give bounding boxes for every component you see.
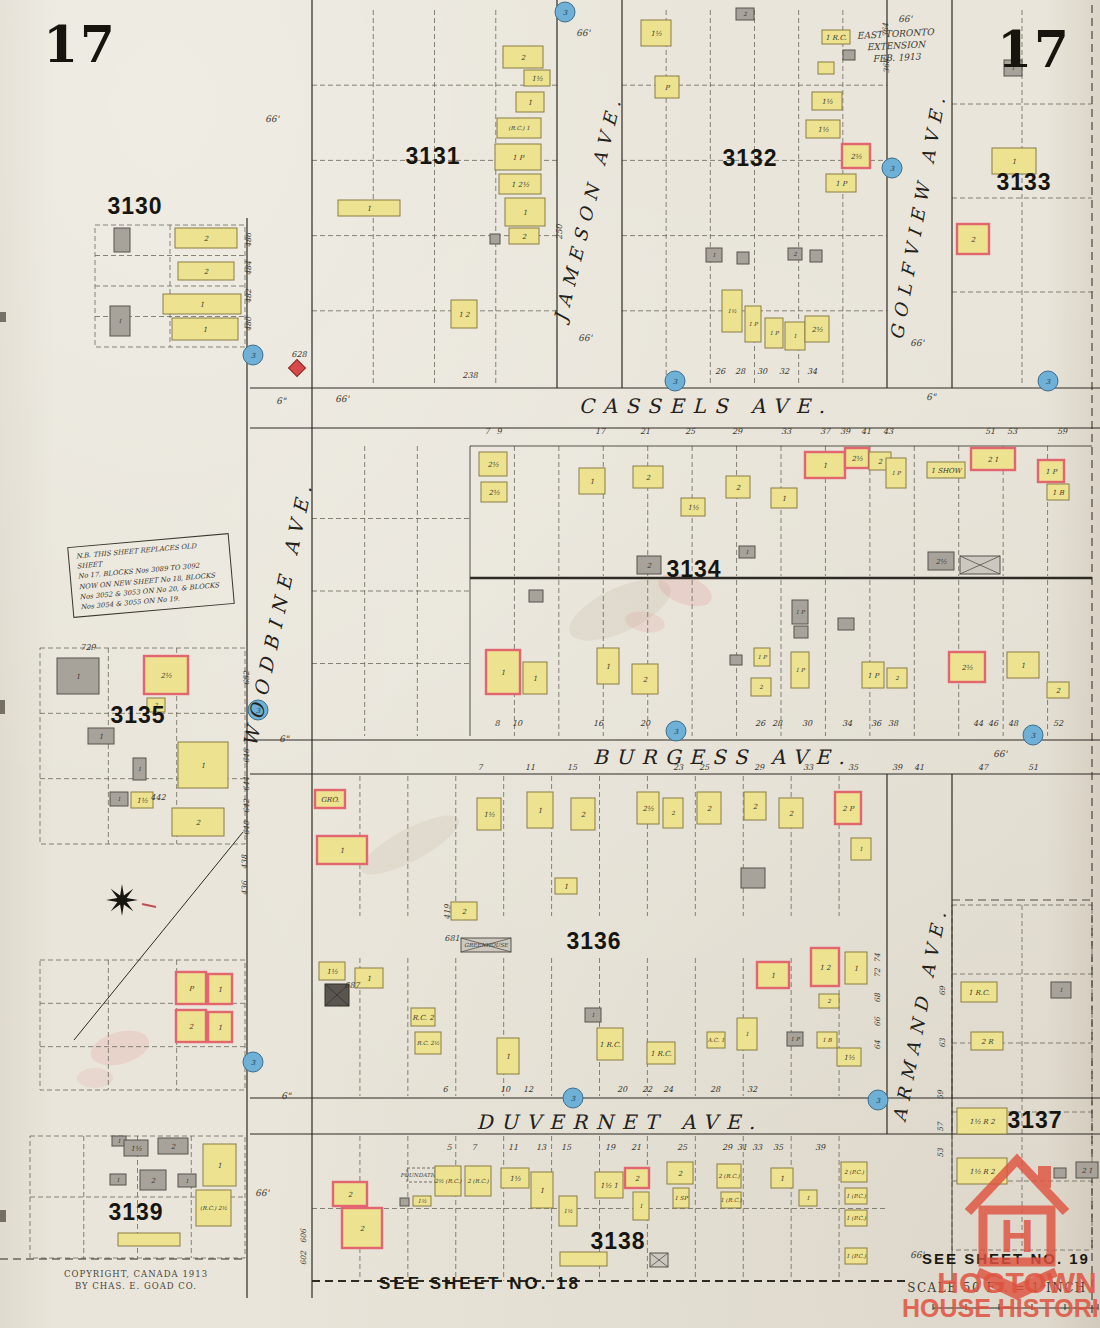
svg-text:1 P: 1 P — [867, 672, 880, 680]
svg-text:1: 1 — [117, 1138, 121, 1144]
svg-text:2½: 2½ — [935, 558, 946, 566]
svg-text:11: 11 — [508, 1143, 518, 1152]
street-label-burgess: BURGESS AVE. — [593, 745, 853, 769]
replacement-note-box: N.B. THIS SHEET REPLACES OLD SHEET No 17… — [67, 533, 235, 618]
svg-text:3: 3 — [571, 1095, 576, 1103]
svg-text:2: 2 — [753, 803, 758, 811]
svg-text:1: 1 — [138, 766, 142, 772]
svg-text:1: 1 — [854, 965, 858, 973]
svg-text:1 P: 1 P — [795, 667, 805, 673]
svg-text:2½ (R.C.): 2½ (R.C.) — [435, 1178, 463, 1184]
svg-text:1 SHOW: 1 SHOW — [931, 467, 963, 475]
svg-text:1 (P.C.): 1 (P.C.) — [846, 1253, 867, 1259]
svg-text:37: 37 — [820, 427, 831, 436]
svg-text:GRO.: GRO. — [321, 796, 339, 804]
svg-text:1: 1 — [76, 673, 80, 681]
copyright-line1: COPYRIGHT, CANADA 1913 — [64, 1269, 208, 1281]
svg-text:10: 10 — [512, 719, 523, 728]
street-label-cassels: CASSELS AVE. — [579, 394, 833, 418]
svg-text:2: 2 — [736, 484, 741, 492]
svg-text:R.C. 2½: R.C. 2½ — [417, 1040, 440, 1046]
svg-text:1: 1 — [793, 333, 797, 339]
svg-text:1½: 1½ — [687, 504, 698, 512]
svg-text:1: 1 — [780, 1175, 784, 1183]
svg-text:48: 48 — [1008, 719, 1019, 728]
svg-text:1: 1 — [501, 669, 505, 677]
svg-text:2 (R.C.): 2 (R.C.) — [467, 1178, 489, 1184]
svg-text:1½: 1½ — [483, 811, 494, 819]
block-label-3135: 3135 — [110, 702, 165, 729]
svg-text:1½: 1½ — [817, 126, 828, 134]
svg-text:2: 2 — [895, 675, 899, 681]
svg-text:59: 59 — [936, 1089, 945, 1100]
svg-text:12: 12 — [523, 1085, 534, 1094]
svg-text:51: 51 — [985, 427, 995, 436]
svg-text:2: 2 — [189, 1023, 194, 1031]
svg-text:2: 2 — [348, 1191, 353, 1199]
svg-text:2: 2 — [647, 562, 652, 570]
svg-text:24: 24 — [663, 1085, 674, 1094]
svg-text:21: 21 — [640, 427, 650, 436]
svg-text:17: 17 — [595, 427, 606, 436]
svg-text:2: 2 — [793, 251, 797, 257]
svg-text:39: 39 — [840, 427, 851, 436]
svg-text:1½: 1½ — [509, 1175, 520, 1183]
svg-text:1 P: 1 P — [891, 470, 901, 476]
svg-text:238: 238 — [462, 371, 478, 380]
svg-text:2½: 2½ — [961, 664, 972, 672]
svg-text:2: 2 — [678, 1170, 683, 1178]
sheet-number-right: 17 — [997, 20, 1071, 79]
svg-text:1½: 1½ — [418, 1198, 428, 1204]
svg-text:2: 2 — [789, 810, 794, 818]
svg-text:1: 1 — [367, 205, 371, 213]
svg-text:681: 681 — [444, 934, 459, 943]
svg-text:1½: 1½ — [564, 1208, 574, 1214]
svg-text:25: 25 — [677, 1143, 688, 1152]
svg-text:39: 39 — [815, 1143, 826, 1152]
svg-text:33: 33 — [752, 1143, 763, 1152]
svg-text:1 SP: 1 SP — [675, 1195, 689, 1201]
svg-text:66': 66' — [255, 1188, 270, 1198]
svg-text:72: 72 — [873, 967, 882, 978]
svg-text:33: 33 — [781, 427, 792, 436]
svg-text:3: 3 — [563, 9, 568, 17]
svg-text:38: 38 — [888, 719, 899, 728]
svg-text:1: 1 — [218, 986, 222, 994]
svg-text:25: 25 — [685, 427, 696, 436]
svg-text:11: 11 — [525, 763, 535, 772]
svg-text:1 P: 1 P — [769, 330, 779, 336]
svg-text:1: 1 — [745, 1031, 749, 1037]
svg-text:1: 1 — [200, 301, 204, 309]
svg-text:1: 1 — [118, 318, 122, 324]
svg-text:606: 606 — [299, 1228, 308, 1244]
svg-text:1½: 1½ — [728, 308, 738, 314]
svg-text:2: 2 — [360, 1225, 365, 1233]
svg-text:1: 1 — [564, 883, 568, 891]
svg-text:2: 2 — [581, 811, 586, 819]
svg-text:687: 687 — [344, 981, 360, 990]
block-label-3139: 3139 — [108, 1199, 163, 1226]
svg-text:480: 480 — [244, 316, 253, 332]
svg-text:1 P: 1 P — [512, 154, 525, 162]
svg-text:22: 22 — [642, 1085, 653, 1094]
svg-text:6": 6" — [276, 396, 287, 406]
svg-text:729: 729 — [80, 643, 96, 652]
svg-text:51: 51 — [1028, 763, 1038, 772]
svg-text:1: 1 — [591, 1012, 595, 1018]
svg-text:2: 2 — [643, 676, 648, 684]
svg-text:1 (R.C.): 1 (R.C.) — [720, 1197, 742, 1203]
svg-text:1: 1 — [823, 462, 827, 470]
svg-text:8: 8 — [494, 719, 500, 728]
svg-text:1: 1 — [99, 733, 103, 741]
svg-text:1 (P.C.): 1 (P.C.) — [846, 1215, 867, 1221]
svg-text:1 R.C.: 1 R.C. — [599, 1041, 621, 1049]
svg-text:1 (P.C.): 1 (P.C.) — [846, 1193, 867, 1199]
svg-text:642: 642 — [242, 798, 251, 814]
svg-text:1½: 1½ — [531, 75, 542, 83]
svg-text:1: 1 — [771, 972, 775, 980]
svg-text:1: 1 — [528, 99, 532, 107]
svg-text:1: 1 — [340, 847, 344, 855]
svg-text:15: 15 — [567, 763, 578, 772]
compass-rose — [74, 832, 243, 1040]
svg-text:3: 3 — [251, 1059, 256, 1067]
svg-text:(R.C.) 2½: (R.C.) 2½ — [200, 1205, 228, 1211]
svg-text:1½: 1½ — [821, 98, 832, 106]
svg-text:47: 47 — [978, 763, 989, 772]
block-label-3132: 3132 — [722, 145, 777, 172]
lot-grid-layer — [30, 10, 1092, 1281]
svg-text:15: 15 — [561, 1143, 572, 1152]
svg-text:7: 7 — [471, 1143, 477, 1152]
svg-text:1 R.C.: 1 R.C. — [650, 1050, 672, 1058]
svg-text:1: 1 — [782, 495, 786, 503]
svg-text:3: 3 — [1046, 378, 1051, 386]
svg-text:1: 1 — [538, 807, 542, 815]
svg-text:419: 419 — [443, 903, 452, 919]
svg-text:26: 26 — [755, 719, 766, 728]
svg-text:2 (R.C.): 2 (R.C.) — [718, 1173, 740, 1179]
svg-text:3: 3 — [251, 352, 256, 360]
svg-text:43: 43 — [883, 427, 894, 436]
see-sheet-19-note: SEE SHEET NO. 19 — [922, 1250, 1090, 1267]
svg-text:10: 10 — [500, 1085, 511, 1094]
svg-text:1½: 1½ — [843, 1054, 854, 1062]
svg-text:66': 66' — [265, 114, 280, 124]
svg-text:66': 66' — [993, 749, 1008, 759]
svg-text:7: 7 — [477, 763, 483, 772]
svg-text:1½: 1½ — [650, 30, 661, 38]
svg-text:53: 53 — [1007, 427, 1018, 436]
svg-text:2 R: 2 R — [981, 1038, 994, 1046]
svg-text:602: 602 — [299, 1250, 308, 1266]
svg-text:1: 1 — [806, 1195, 810, 1201]
svg-text:2½: 2½ — [488, 489, 499, 497]
svg-text:1: 1 — [606, 663, 610, 671]
svg-text:66: 66 — [873, 1016, 882, 1027]
svg-text:20: 20 — [617, 1085, 628, 1094]
svg-text:2: 2 — [971, 236, 976, 244]
svg-text:16: 16 — [593, 719, 604, 728]
svg-text:1 B: 1 B — [1052, 489, 1065, 497]
svg-text:6": 6" — [281, 1091, 292, 1101]
svg-text:1 P: 1 P — [790, 1036, 800, 1042]
svg-text:6: 6 — [442, 1085, 448, 1094]
svg-text:1: 1 — [712, 252, 716, 258]
svg-text:2 (P.C.): 2 (P.C.) — [844, 1169, 865, 1175]
svg-text:44: 44 — [973, 719, 984, 728]
svg-text:1: 1 — [185, 1178, 189, 1184]
svg-text:1: 1 — [533, 675, 537, 683]
svg-text:2½: 2½ — [160, 672, 171, 680]
svg-text:1½: 1½ — [130, 1145, 141, 1153]
svg-text:3: 3 — [890, 165, 895, 173]
svg-text:46: 46 — [988, 719, 999, 728]
svg-text:652: 652 — [242, 670, 251, 686]
svg-text:1: 1 — [217, 1162, 221, 1170]
see-sheet-18-note: SEE SHEET NO. 18 — [379, 1274, 581, 1294]
svg-text:64: 64 — [873, 1040, 882, 1050]
svg-text:2½: 2½ — [642, 805, 653, 813]
block-label-3130: 3130 — [107, 193, 162, 220]
svg-text:1 R.C.: 1 R.C. — [825, 34, 847, 42]
svg-text:32: 32 — [779, 367, 790, 376]
scale-bar — [933, 1304, 1098, 1310]
svg-text:438: 438 — [240, 854, 249, 870]
svg-text:28: 28 — [735, 367, 746, 376]
svg-text:2 1: 2 1 — [987, 456, 998, 464]
svg-text:2: 2 — [196, 819, 201, 827]
svg-text:31: 31 — [737, 1143, 747, 1152]
svg-text:21: 21 — [631, 1143, 641, 1152]
svg-text:1: 1 — [116, 1177, 120, 1183]
svg-text:2: 2 — [462, 908, 467, 916]
svg-text:35: 35 — [773, 1143, 784, 1152]
svg-text:1 2: 1 2 — [819, 964, 831, 972]
svg-text:74: 74 — [873, 953, 882, 963]
svg-text:1: 1 — [859, 846, 863, 852]
svg-text:19: 19 — [605, 1143, 616, 1152]
svg-text:59: 59 — [1057, 427, 1068, 436]
svg-text:26: 26 — [715, 367, 726, 376]
svg-text:1 2: 1 2 — [458, 311, 470, 319]
block-label-3131: 3131 — [405, 143, 460, 170]
svg-text:1 P: 1 P — [795, 609, 805, 615]
svg-text:1 2½: 1 2½ — [511, 181, 529, 189]
scan-edge-marks — [0, 312, 6, 1222]
map-sheet: 2211121½1(R.C.) 11 P1 2½1211 21½2P1 R.C.… — [0, 0, 1100, 1328]
svg-text:442: 442 — [150, 793, 166, 802]
svg-text:2: 2 — [646, 474, 651, 482]
block-label-3137: 3137 — [1007, 1107, 1062, 1134]
block-label-3133: 3133 — [996, 169, 1051, 196]
svg-text:2 P: 2 P — [842, 805, 855, 813]
svg-text:GREENHOUSE: GREENHOUSE — [464, 942, 509, 948]
svg-text:2: 2 — [759, 684, 763, 690]
svg-text:436: 436 — [240, 880, 249, 896]
svg-text:2½: 2½ — [850, 153, 861, 161]
svg-text:68: 68 — [873, 992, 882, 1003]
svg-text:2½: 2½ — [851, 455, 862, 463]
svg-text:66': 66' — [898, 14, 913, 24]
svg-text:1: 1 — [523, 209, 527, 217]
svg-text:39: 39 — [892, 763, 903, 772]
svg-text:36: 36 — [871, 719, 882, 728]
svg-text:2: 2 — [743, 11, 747, 17]
svg-text:2½: 2½ — [811, 326, 822, 334]
svg-text:1: 1 — [745, 549, 749, 555]
svg-text:29: 29 — [732, 427, 743, 436]
svg-text:3: 3 — [673, 378, 678, 386]
svg-text:66': 66' — [576, 28, 591, 38]
svg-text:1½: 1½ — [326, 968, 337, 976]
svg-text:41: 41 — [914, 763, 924, 772]
svg-text:2: 2 — [204, 235, 209, 243]
svg-text:1 R.C.: 1 R.C. — [968, 989, 990, 997]
svg-text:1: 1 — [639, 1203, 643, 1209]
svg-text:1 P: 1 P — [1045, 468, 1058, 476]
svg-text:640: 640 — [242, 820, 251, 836]
svg-text:53: 53 — [936, 1147, 945, 1158]
svg-text:30: 30 — [802, 719, 813, 728]
svg-text:1: 1 — [203, 326, 207, 334]
svg-text:66': 66' — [578, 333, 593, 343]
copyright-note: COPYRIGHT, CANADA 1913 BY CHAS. E. GOAD … — [64, 1269, 208, 1293]
svg-text:13: 13 — [536, 1143, 547, 1152]
sheet-number-left: 17 — [43, 15, 117, 74]
svg-text:2: 2 — [827, 998, 831, 1004]
svg-text:R.C. 2: R.C. 2 — [412, 1014, 434, 1022]
svg-text:34: 34 — [807, 367, 818, 376]
svg-text:3: 3 — [674, 728, 679, 736]
svg-text:29: 29 — [722, 1143, 733, 1152]
fire-alarm-box-symbol — [289, 360, 306, 377]
svg-text:28: 28 — [772, 719, 783, 728]
svg-text:6": 6" — [926, 392, 937, 402]
svg-text:41: 41 — [861, 427, 871, 436]
block-label-3136: 3136 — [566, 928, 621, 955]
svg-text:2½: 2½ — [487, 461, 498, 469]
extension-note: EAST TORONTO EXTENSION FEB. 1913 — [857, 26, 936, 66]
svg-text:1½ R 2: 1½ R 2 — [969, 1118, 995, 1126]
svg-text:1: 1 — [117, 796, 121, 802]
svg-text:1: 1 — [506, 1053, 510, 1061]
svg-text:30: 30 — [757, 367, 768, 376]
block-label-3138: 3138 — [590, 1228, 645, 1255]
svg-text:482: 482 — [244, 288, 253, 304]
svg-text:1 P: 1 P — [748, 321, 758, 327]
svg-text:2: 2 — [171, 1143, 176, 1151]
svg-text:34: 34 — [842, 719, 853, 728]
svg-text:52: 52 — [1053, 719, 1064, 728]
svg-text:28: 28 — [710, 1085, 721, 1094]
svg-text:2 1: 2 1 — [1081, 1167, 1092, 1175]
scale-text: SCALE 50 FT. = 1 INCH — [907, 1281, 1087, 1295]
svg-text:1: 1 — [367, 975, 371, 983]
svg-text:1½: 1½ — [136, 797, 147, 805]
svg-text:1: 1 — [218, 1024, 222, 1032]
svg-text:250: 250 — [555, 223, 564, 239]
svg-text:66': 66' — [910, 338, 925, 348]
svg-text:1½ 1: 1½ 1 — [600, 1182, 618, 1190]
svg-text:628: 628 — [291, 350, 307, 359]
svg-text:1: 1 — [1059, 987, 1063, 993]
svg-text:3: 3 — [876, 1097, 881, 1105]
svg-text:644: 644 — [242, 777, 251, 792]
svg-text:2: 2 — [671, 810, 675, 816]
street-label-duvernet: DUVERNET AVE. — [477, 1110, 764, 1134]
svg-text:20: 20 — [640, 719, 651, 728]
svg-text:2: 2 — [1056, 687, 1061, 695]
svg-text:486: 486 — [244, 232, 253, 248]
svg-text:484: 484 — [244, 261, 253, 276]
svg-text:6": 6" — [279, 734, 290, 744]
svg-text:32: 32 — [747, 1085, 758, 1094]
svg-text:2: 2 — [707, 805, 712, 813]
svg-text:1½ R 2: 1½ R 2 — [969, 1168, 995, 1176]
svg-text:1: 1 — [1012, 158, 1016, 166]
svg-text:63: 63 — [938, 1037, 947, 1048]
svg-text:1: 1 — [590, 478, 594, 486]
svg-text:1 P: 1 P — [835, 180, 848, 188]
svg-text:1: 1 — [1021, 662, 1025, 670]
svg-text:2: 2 — [204, 268, 209, 276]
svg-text:(R.C.) 1: (R.C.) 1 — [508, 125, 530, 131]
block-label-3134: 3134 — [666, 556, 721, 583]
svg-text:2: 2 — [522, 233, 527, 241]
copyright-line2: BY CHAS. E. GOAD CO. — [64, 1281, 208, 1293]
svg-text:646: 646 — [242, 748, 251, 764]
svg-text:2: 2 — [635, 1175, 640, 1183]
svg-text:66': 66' — [335, 394, 350, 404]
svg-text:2: 2 — [151, 1177, 156, 1185]
svg-text:1 B: 1 B — [822, 1037, 832, 1043]
svg-text:2: 2 — [521, 54, 526, 62]
svg-text:2: 2 — [878, 458, 883, 466]
svg-text:57: 57 — [936, 1121, 945, 1132]
svg-text:1 P: 1 P — [757, 654, 767, 660]
svg-text:A.C. 1: A.C. 1 — [706, 1037, 724, 1043]
svg-text:69: 69 — [938, 985, 947, 996]
svg-text:3: 3 — [1031, 732, 1036, 740]
svg-text:5: 5 — [446, 1143, 452, 1152]
svg-text:1: 1 — [201, 762, 205, 770]
svg-text:1: 1 — [540, 1187, 544, 1195]
